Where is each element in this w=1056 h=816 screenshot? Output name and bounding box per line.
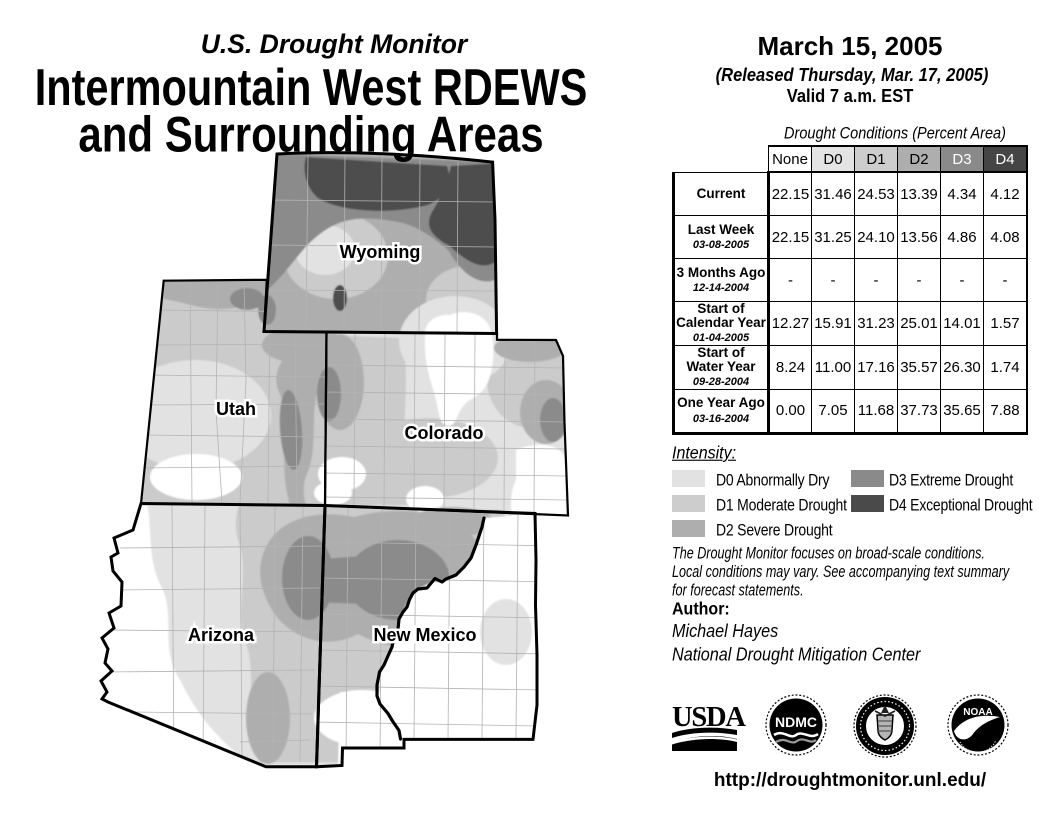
svg-text:New Mexico: New Mexico xyxy=(373,625,476,645)
svg-text:Arizona: Arizona xyxy=(188,625,255,645)
svg-text:Utah: Utah xyxy=(216,399,256,419)
svg-text:NDMC: NDMC xyxy=(775,714,817,730)
svg-text:Colorado: Colorado xyxy=(405,423,484,443)
svg-text:Wyoming: Wyoming xyxy=(340,242,421,262)
